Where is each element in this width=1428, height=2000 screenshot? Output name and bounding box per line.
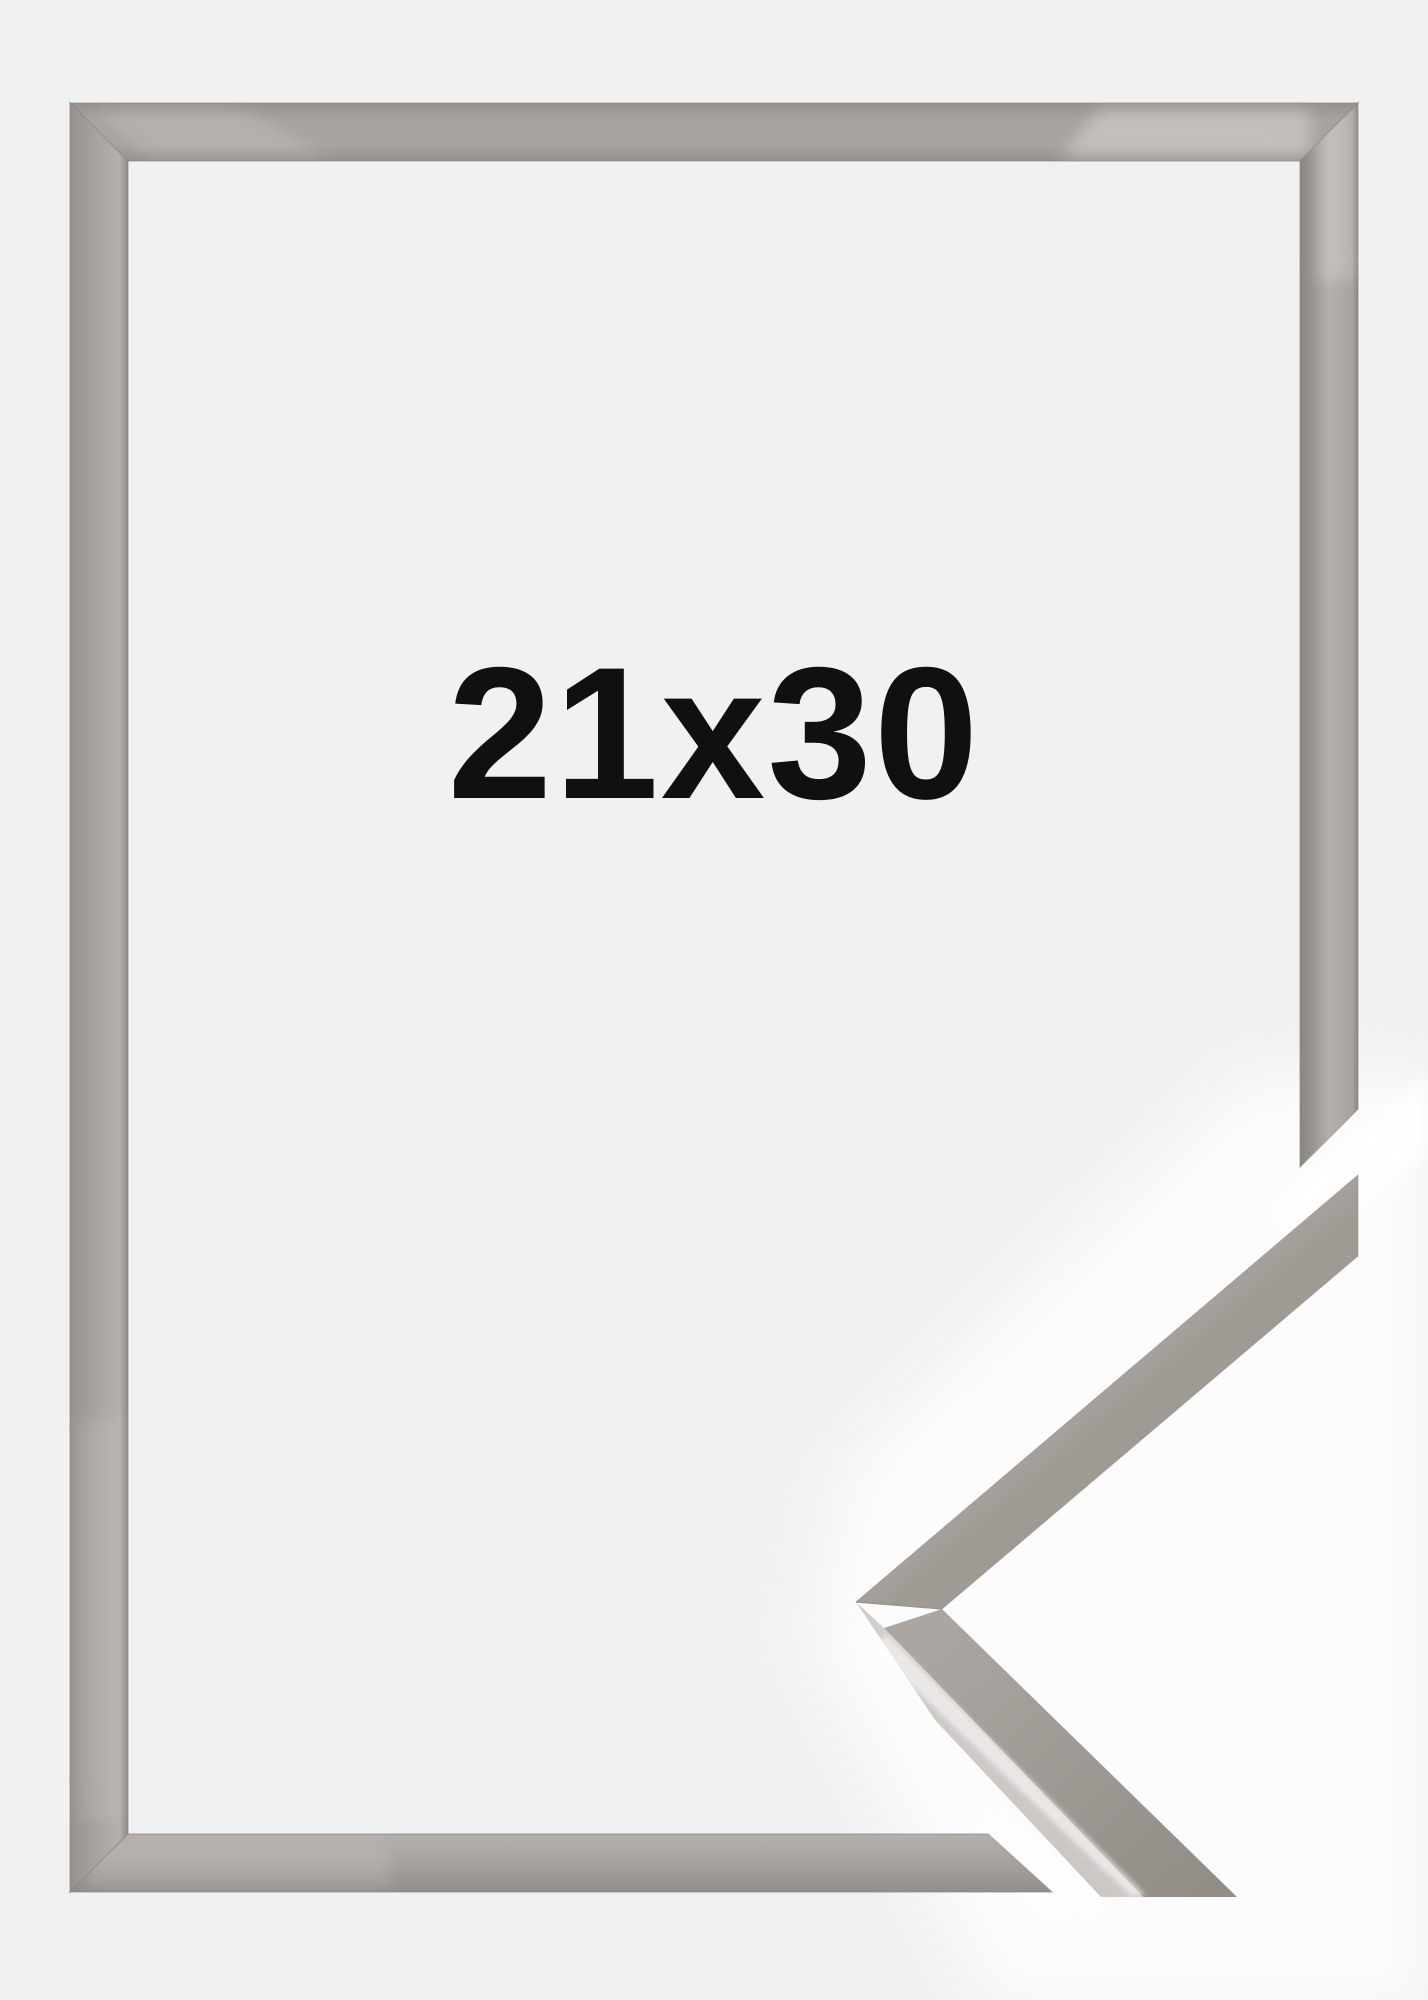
left-bar-sheens <box>76 1420 122 1820</box>
size-label: 21x30 <box>448 628 981 838</box>
bottom-bar-sheen <box>90 1845 390 1889</box>
frame-visualization: 21x30 <box>0 0 1428 2000</box>
frame-product-image: 21x30 <box>0 0 1428 2000</box>
left-bar-sheen <box>76 1420 122 1820</box>
top-bar-sheen-right <box>1060 108 1310 158</box>
bottom-bar-sheens <box>90 1845 390 1889</box>
